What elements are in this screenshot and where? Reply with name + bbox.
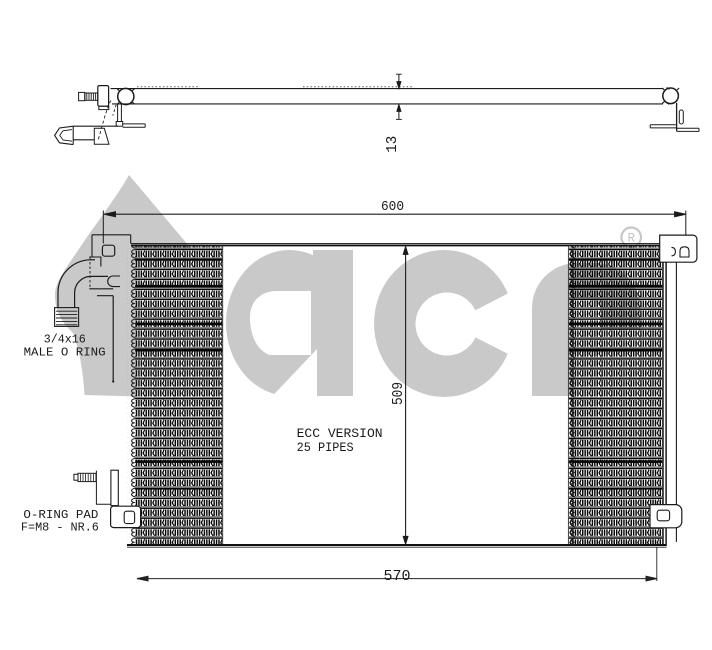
svg-text:570: 570 [384,568,411,585]
svg-text:509: 509 [391,382,407,405]
svg-text:600: 600 [381,199,404,215]
svg-text:F=M8 - NR.6: F=M8 - NR.6 [21,521,99,535]
svg-text:3/4x16: 3/4x16 [44,333,86,347]
svg-text:MALE O RING: MALE O RING [24,346,106,360]
svg-text:13: 13 [385,136,401,153]
svg-text:ECC VERSION: ECC VERSION [297,426,383,441]
svg-text:25 PIPES: 25 PIPES [297,440,354,455]
